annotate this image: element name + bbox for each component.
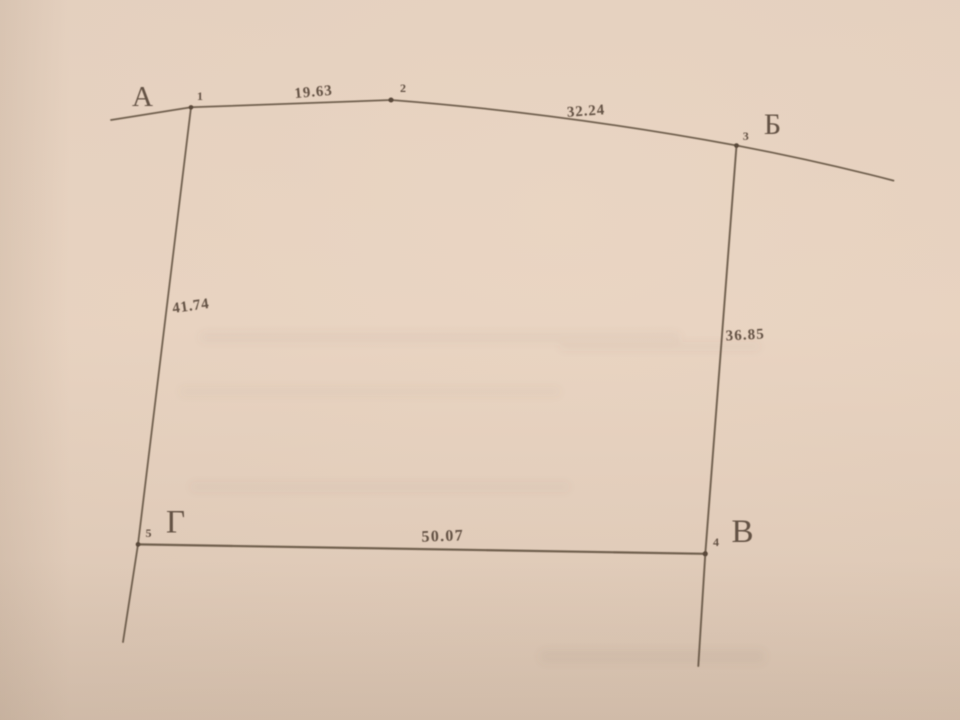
svg-text:2: 2 [400, 81, 406, 95]
svg-text:Г: Г [166, 505, 185, 541]
svg-text:В: В [731, 514, 753, 550]
svg-text:1: 1 [197, 89, 203, 103]
svg-text:32.24: 32.24 [566, 102, 605, 121]
svg-text:36.85: 36.85 [725, 326, 765, 344]
svg-text:4: 4 [713, 535, 719, 549]
svg-text:3: 3 [743, 129, 749, 143]
svg-text:50.07: 50.07 [421, 527, 464, 545]
svg-text:5: 5 [146, 526, 152, 540]
svg-text:19.63: 19.63 [294, 83, 333, 102]
svg-text:А: А [132, 81, 153, 113]
svg-text:Б: Б [764, 108, 781, 141]
